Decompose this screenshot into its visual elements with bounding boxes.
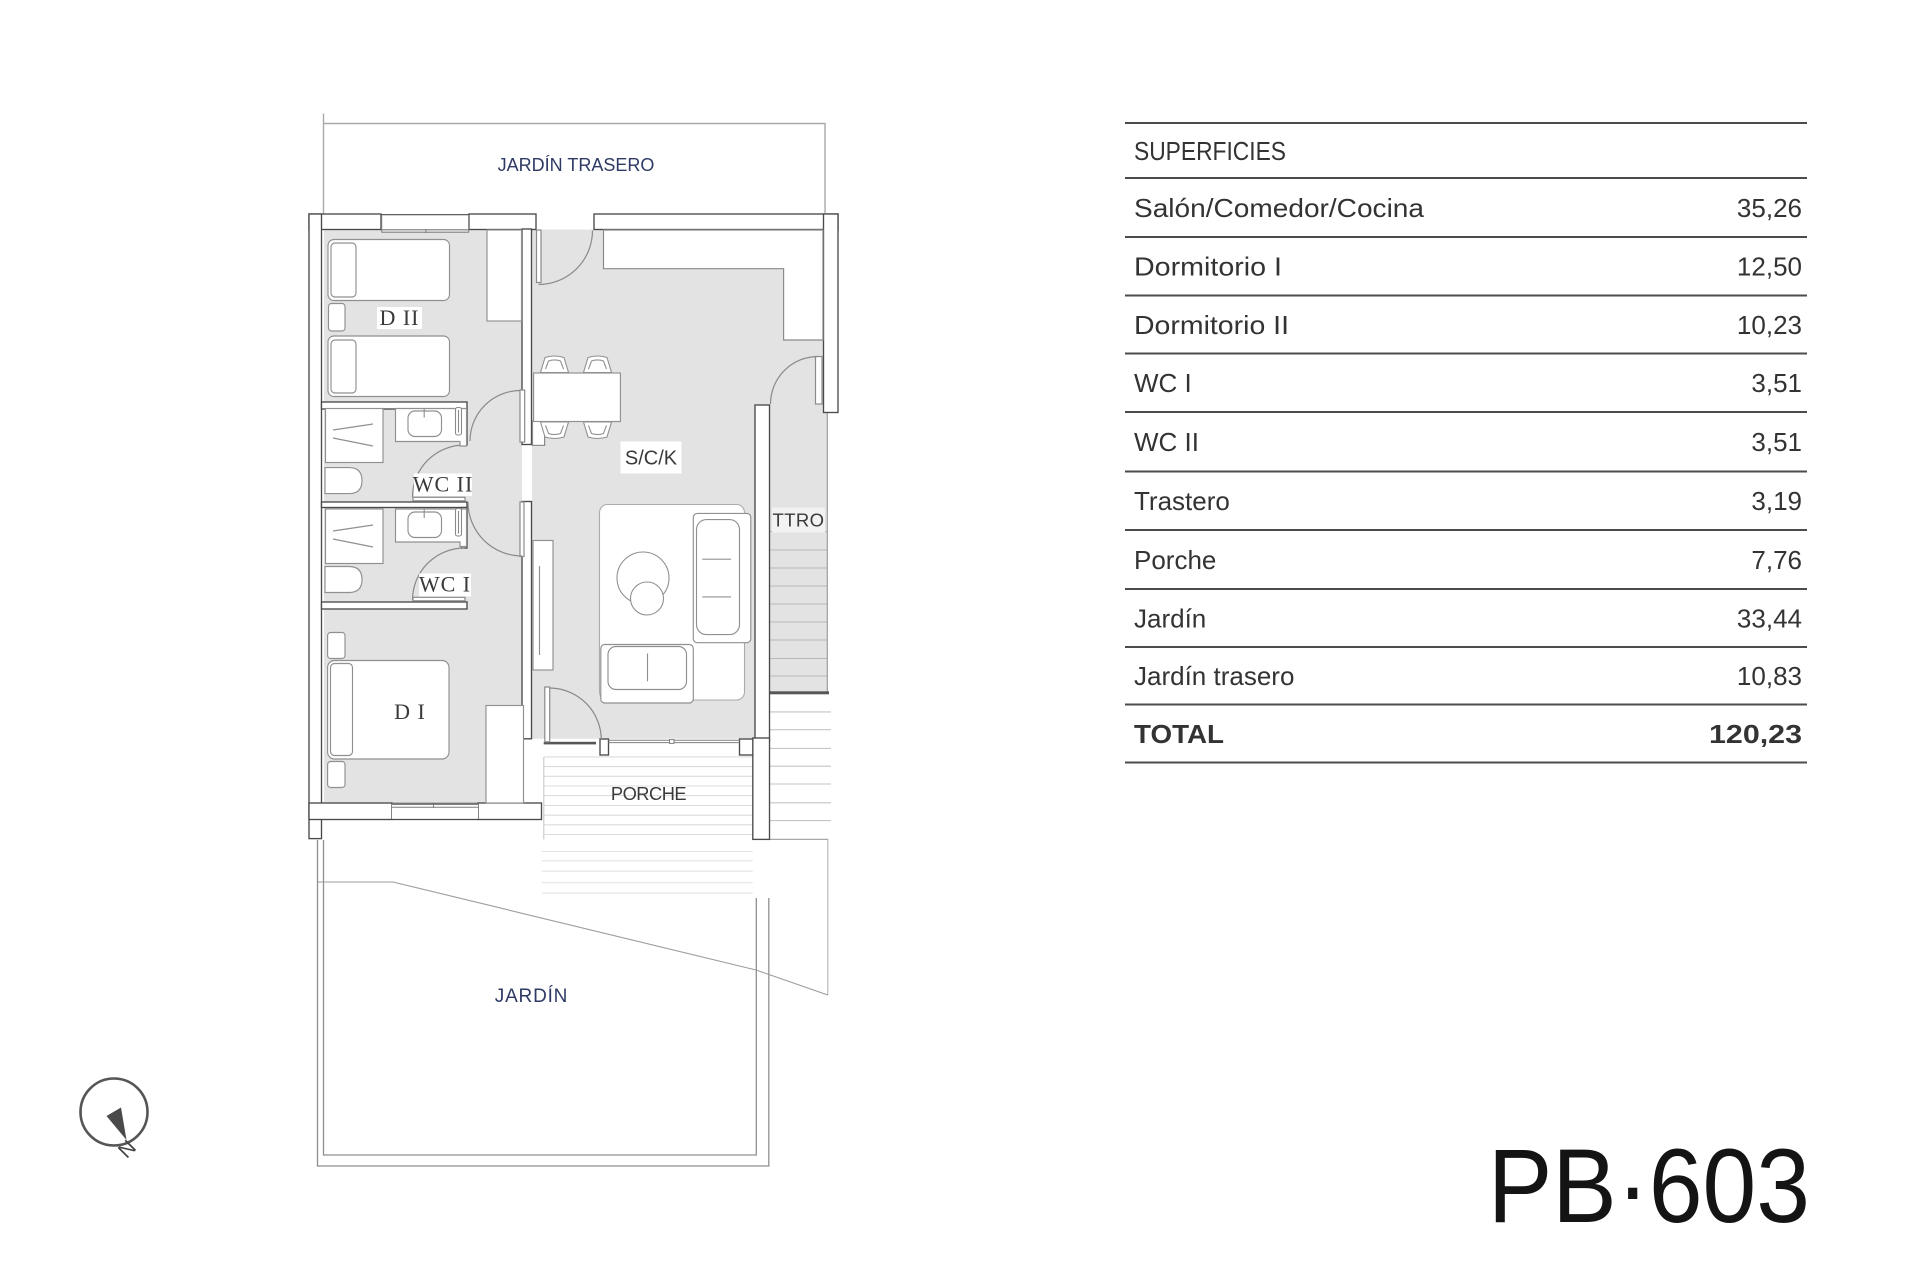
svg-text:PORCHE: PORCHE xyxy=(611,783,687,804)
svg-text:Dormitorio I: Dormitorio I xyxy=(1134,252,1282,282)
svg-text:35,26: 35,26 xyxy=(1737,193,1802,223)
svg-text:WC I: WC I xyxy=(1134,368,1192,398)
svg-text:10,23: 10,23 xyxy=(1737,310,1802,340)
svg-text:PB·603: PB·603 xyxy=(1488,1128,1810,1245)
svg-text:JARDÍN: JARDÍN xyxy=(495,986,568,1007)
svg-text:Trastero: Trastero xyxy=(1134,486,1230,516)
svg-text:WC II: WC II xyxy=(1134,427,1199,457)
svg-text:33,44: 33,44 xyxy=(1737,603,1802,633)
svg-text:S/C/K: S/C/K xyxy=(625,448,678,470)
svg-text:Jardín trasero: Jardín trasero xyxy=(1134,661,1294,691)
svg-text:3,51: 3,51 xyxy=(1751,427,1802,457)
svg-text:WC I: WC I xyxy=(419,572,471,597)
svg-text:JARDÍN TRASERO: JARDÍN TRASERO xyxy=(498,155,655,175)
svg-text:7,76: 7,76 xyxy=(1751,545,1802,575)
svg-text:TOTAL: TOTAL xyxy=(1134,719,1224,749)
svg-text:WC II: WC II xyxy=(413,472,474,497)
svg-text:Salón/Comedor/Cocina: Salón/Comedor/Cocina xyxy=(1134,193,1425,223)
svg-text:D II: D II xyxy=(379,305,419,330)
svg-text:120,23: 120,23 xyxy=(1709,719,1802,749)
svg-text:Porche: Porche xyxy=(1134,545,1216,575)
svg-text:Jardín: Jardín xyxy=(1134,603,1206,633)
svg-text:Dormitorio II: Dormitorio II xyxy=(1134,310,1289,340)
svg-text:TTRO: TTRO xyxy=(773,510,825,531)
svg-text:3,51: 3,51 xyxy=(1751,368,1802,398)
svg-text:D I: D I xyxy=(394,699,426,724)
svg-text:12,50: 12,50 xyxy=(1737,252,1802,282)
svg-text:10,83: 10,83 xyxy=(1737,661,1802,691)
svg-text:SUPERFICIES: SUPERFICIES xyxy=(1134,136,1286,166)
svg-text:3,19: 3,19 xyxy=(1751,486,1802,516)
